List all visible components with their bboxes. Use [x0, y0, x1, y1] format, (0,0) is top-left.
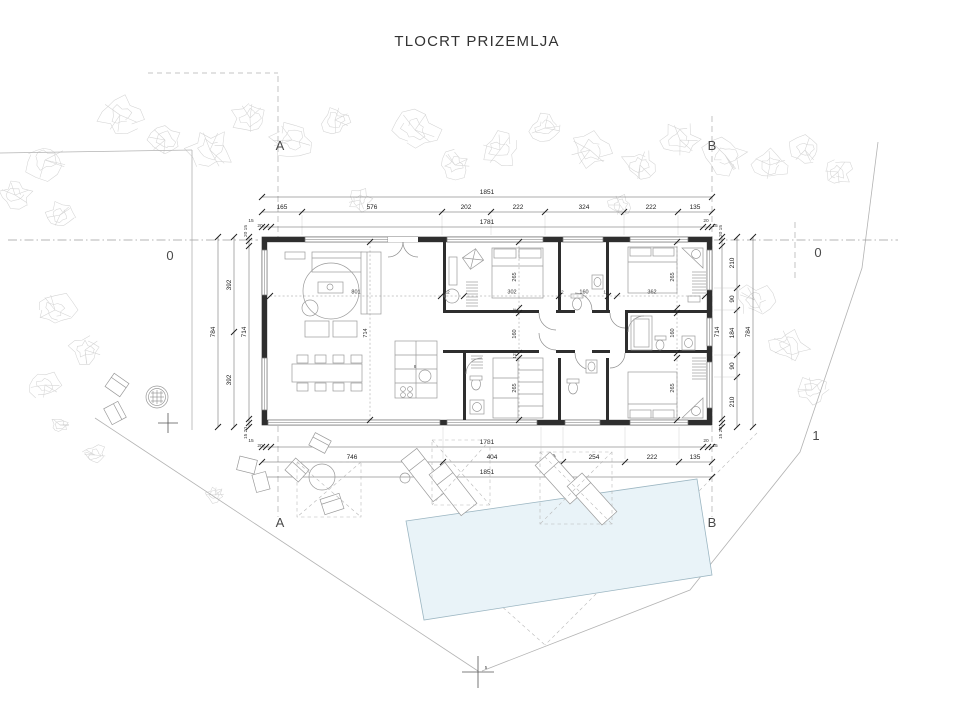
dim-seg: 324 — [579, 204, 590, 211]
dim-seg: 222 — [513, 204, 524, 211]
dim-seg: 576 — [367, 204, 378, 211]
tree — [184, 132, 231, 167]
tree — [45, 202, 76, 226]
dim-label: 160 — [579, 290, 588, 296]
dim-wall: 20 — [703, 438, 709, 444]
axis-label-a-bottom: A — [276, 515, 285, 530]
dim-wall: 20 — [257, 443, 263, 449]
patio-chair — [320, 493, 344, 514]
toilet — [656, 340, 664, 350]
dim-total-left: 784 — [210, 326, 217, 337]
axis-label-0-right: 0 — [814, 245, 821, 260]
dim-label: 12 — [444, 290, 450, 296]
washbasin — [682, 336, 695, 350]
tree — [0, 181, 33, 209]
tree — [825, 160, 852, 183]
dimensions-left: 784 392 392 714 20 15 15 20 — [210, 225, 249, 439]
dim-wall: 20 15 — [243, 225, 249, 237]
dim-label: 362 — [647, 290, 656, 296]
tv-shelf — [285, 252, 305, 259]
dim-seg: 210 — [729, 257, 736, 268]
dim-wall: 15 20 — [243, 427, 249, 439]
dim-label: 714 — [363, 328, 369, 337]
tree — [52, 419, 69, 431]
dim-seg: 135 — [690, 454, 701, 461]
dim-seg: 165 — [277, 204, 288, 211]
dimensions-right: 714 20 15 15 20 210 90 184 90 210 784 — [714, 225, 752, 439]
dim-seg: 202 — [461, 204, 472, 211]
dim-wall: 15 — [248, 438, 254, 444]
entrance-opening — [388, 237, 418, 242]
dim-label: 12 — [512, 353, 518, 359]
dim-label: 265 — [512, 383, 518, 392]
side-table — [400, 473, 410, 483]
tree — [321, 108, 351, 134]
dim-wall: 15 — [248, 218, 254, 224]
dim-total-right: 784 — [745, 326, 752, 337]
tree — [232, 103, 265, 132]
dim-wall: 20 — [257, 223, 263, 229]
garden-chair — [105, 373, 129, 396]
patio-chair — [252, 471, 270, 492]
dim-label: 160 — [512, 329, 518, 338]
floor-plan-canvas: 8 — [0, 0, 960, 720]
dim-label: 160 — [670, 328, 676, 337]
dim-seg: 90 — [729, 295, 736, 303]
dim-label: 265 — [670, 272, 676, 281]
dim-seg: 404 — [487, 454, 498, 461]
dim-seg: 254 — [589, 454, 600, 461]
axis-label-b-bottom: B — [708, 515, 717, 530]
dim-label: 265 — [512, 272, 518, 281]
tree — [751, 148, 788, 179]
dim-label: 302 — [507, 290, 516, 296]
dim-seg: 222 — [646, 204, 657, 211]
dim-label: 265 — [670, 383, 676, 392]
patio-chair — [309, 433, 331, 454]
patio-chair — [237, 456, 258, 474]
dim-seg: 90 — [729, 362, 736, 370]
dim-inner-right: 714 — [714, 326, 721, 337]
sofa-chaise — [361, 252, 381, 314]
tree — [608, 194, 631, 214]
toilet — [573, 298, 582, 310]
tree — [30, 372, 62, 398]
dim-total-top: 1851 — [480, 189, 495, 196]
axis-label-b-top: B — [708, 138, 717, 153]
tree — [789, 135, 817, 164]
dim-total-bottom: 1851 — [480, 469, 495, 476]
tree — [622, 151, 656, 180]
tree — [441, 149, 469, 180]
dim-wall: 15 20 — [718, 427, 724, 439]
dim-seg: 746 — [347, 454, 358, 461]
dim-seg: 392 — [226, 374, 233, 385]
dim-seg: 392 — [226, 279, 233, 290]
dim-label: 12 — [558, 290, 564, 296]
coffee-table — [318, 282, 343, 293]
toilet — [569, 382, 578, 394]
dim-inner-top: 1781 — [480, 219, 495, 226]
dim-label: 12 — [603, 290, 609, 296]
ottoman — [333, 321, 357, 337]
tree — [769, 329, 811, 360]
tree — [392, 109, 442, 148]
dim-seg: 210 — [729, 396, 736, 407]
garden-chair — [104, 401, 127, 424]
ottoman — [305, 321, 329, 337]
dim-wall: 15 — [712, 223, 718, 229]
dim-wall: 15 — [712, 443, 718, 449]
tree — [572, 131, 613, 169]
dim-wall: 20 — [703, 218, 709, 224]
tree — [798, 378, 830, 406]
dim-inner-left: 714 — [241, 326, 248, 337]
tree — [68, 336, 100, 365]
dim-label: 12 — [512, 308, 518, 314]
tree — [147, 126, 180, 154]
axis-label-0-left: 0 — [166, 248, 173, 263]
dim-wall: 20 15 — [718, 225, 724, 237]
dim-seg: 184 — [729, 327, 736, 338]
dining-table — [292, 364, 362, 382]
page-title: TLOCRT PRIZEMLJA — [394, 33, 559, 50]
tree — [82, 445, 105, 463]
tree — [738, 285, 776, 314]
tree — [26, 148, 65, 181]
sofa — [312, 252, 362, 272]
tree — [529, 113, 560, 142]
dimensions-top: 1851 165 576 202 222 324 222 135 1781 15… — [248, 189, 718, 229]
axis-label-a-top: A — [276, 138, 285, 153]
dim-seg: 222 — [647, 454, 658, 461]
tree — [97, 95, 145, 134]
axis-label-1-right: 1 — [812, 428, 819, 443]
tree — [483, 131, 516, 166]
desk — [449, 257, 457, 285]
tree — [39, 293, 78, 323]
dim-label: 801 — [351, 290, 360, 296]
building: 8 — [262, 237, 712, 425]
tree — [660, 123, 702, 155]
dim-seg: 135 — [690, 204, 701, 211]
washing-machine — [470, 400, 484, 414]
